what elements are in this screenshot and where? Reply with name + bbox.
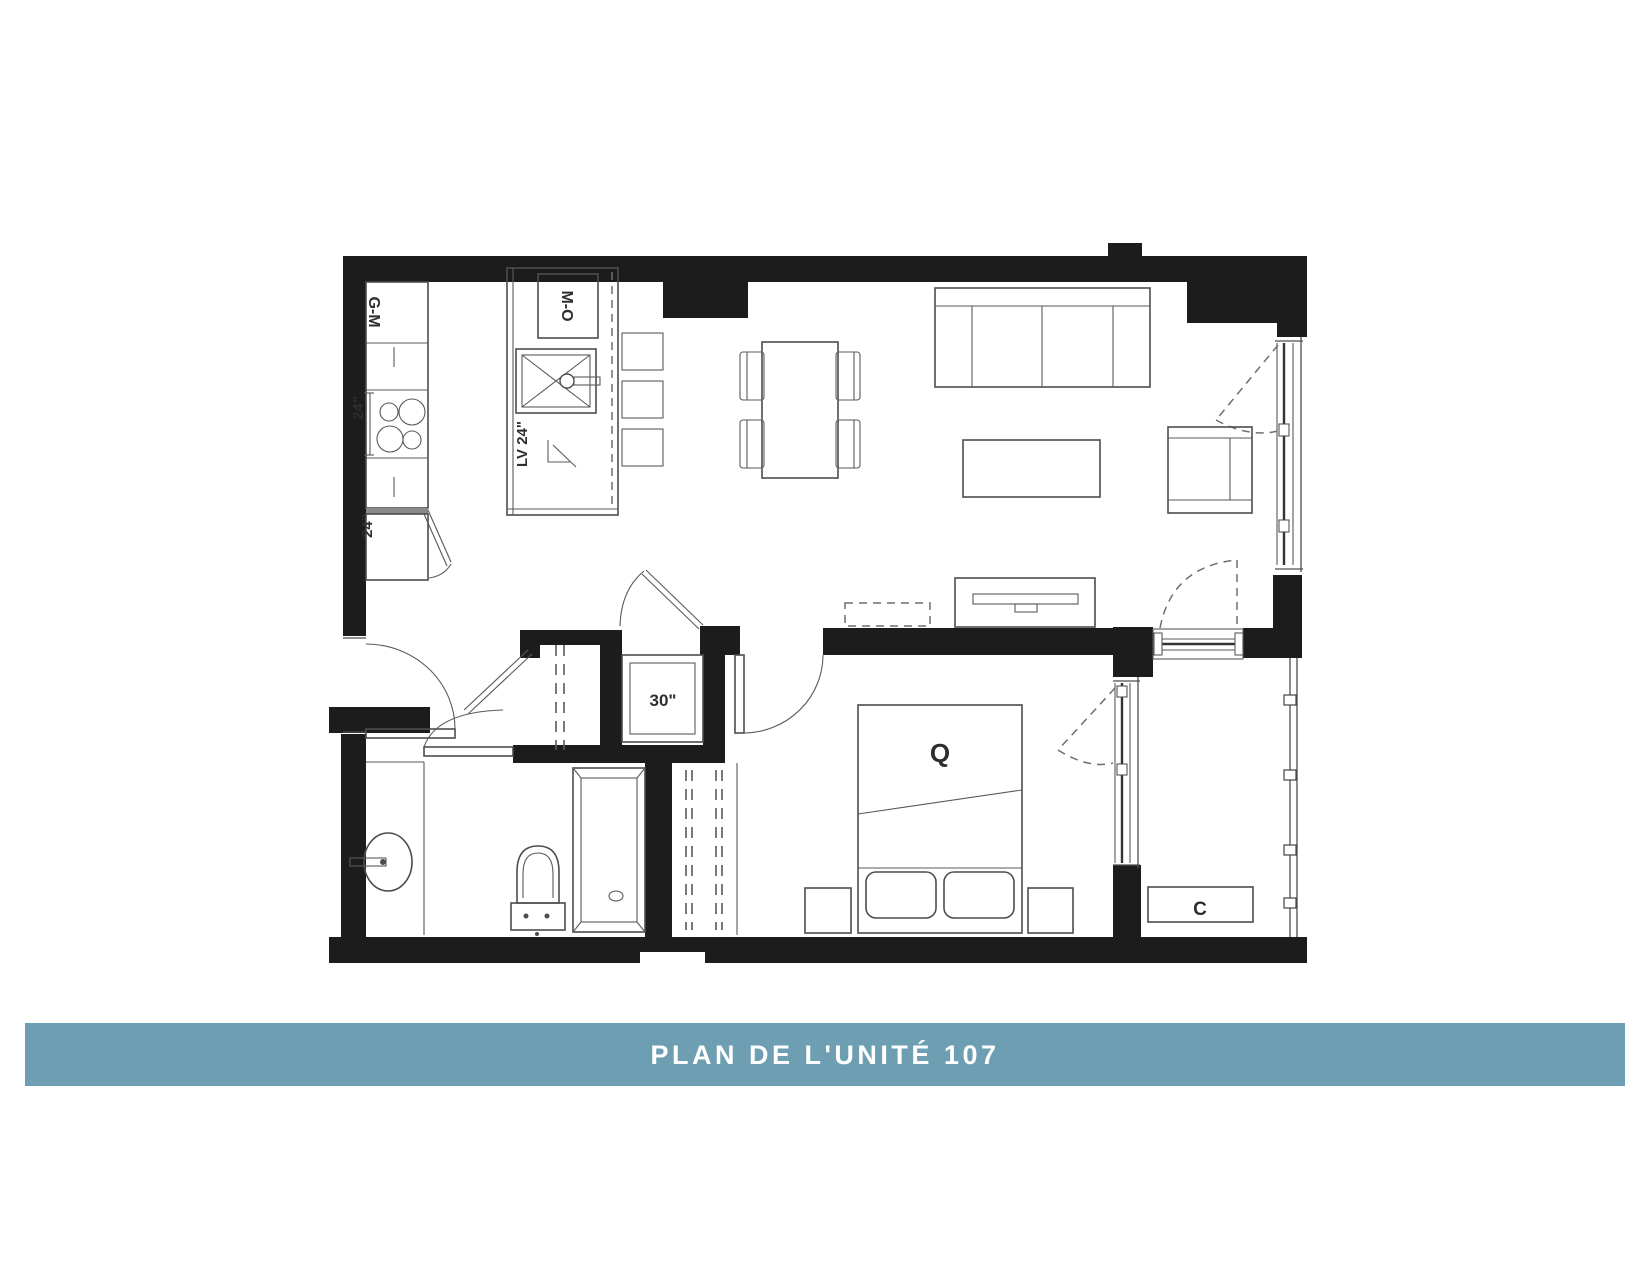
bed-label: Q <box>930 738 950 768</box>
floor-plan-svg: G-M 24" 24" M-O LV 24" <box>0 0 1650 1275</box>
railing-post <box>1284 695 1296 705</box>
banner: PLAN DE L'UNITÉ 107 <box>25 1023 1625 1086</box>
balcony-unit-label: C <box>1193 899 1207 920</box>
counter-width-label: 24" <box>350 396 367 420</box>
railing-post <box>1284 770 1296 780</box>
dishwasher-label: LV 24" <box>514 421 531 467</box>
banner-title: PLAN DE L'UNITÉ 107 <box>651 1039 1000 1070</box>
microwave-oven-label: M-O <box>558 290 575 321</box>
laundry-closet-label: 30" <box>650 691 677 710</box>
lower-cabinet-label: 24" <box>359 514 376 538</box>
railing-post <box>1284 845 1296 855</box>
railing-post <box>1284 898 1296 908</box>
pantry-label: G-M <box>365 296 382 327</box>
